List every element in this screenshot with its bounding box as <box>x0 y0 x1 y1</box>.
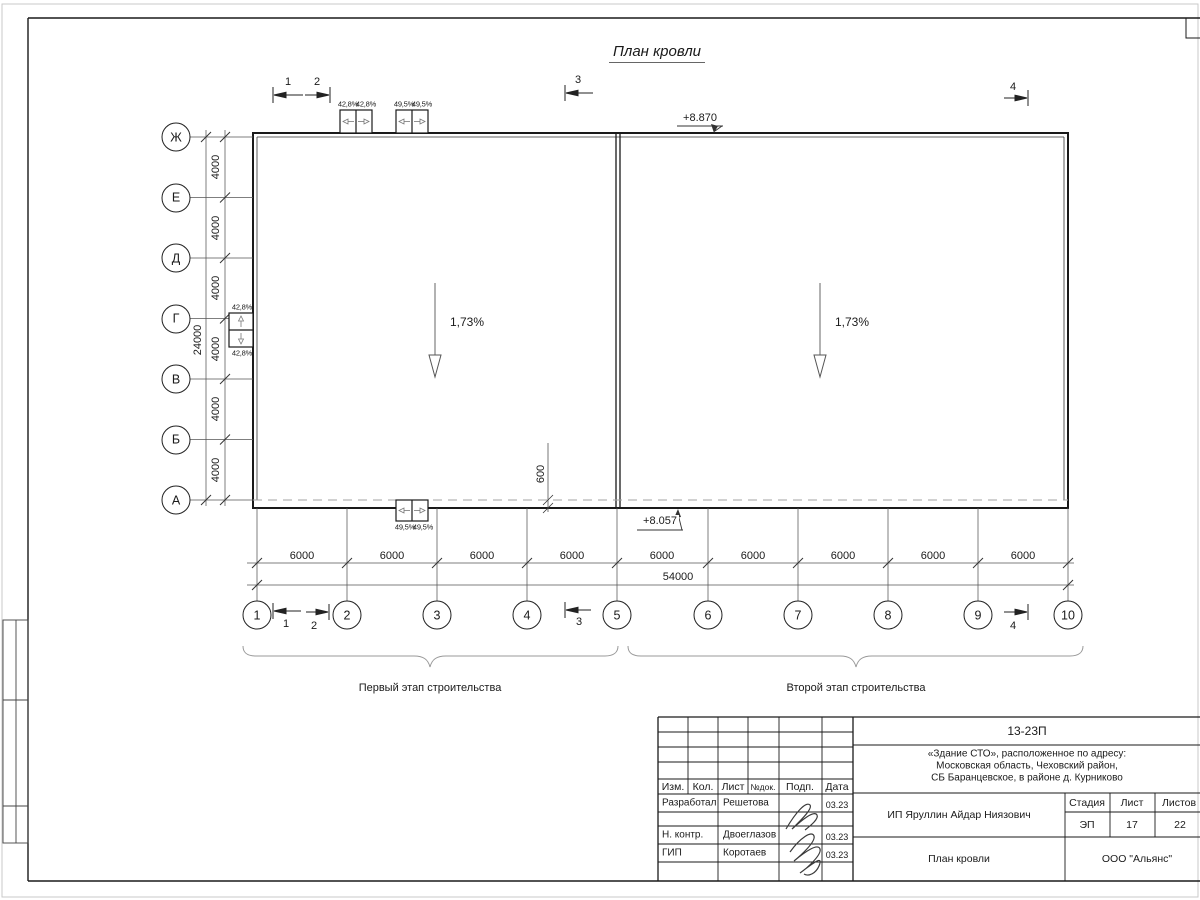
rev-header-cell: №док. <box>751 782 776 792</box>
rev-header-cell: Лист <box>722 781 745 793</box>
col-dim: 6000 <box>650 550 674 562</box>
col-axis-bubble: 5 <box>603 601 632 630</box>
col-axis-bubble: 9 <box>964 601 993 630</box>
hatch-label: 42,8% <box>232 349 252 358</box>
sheet-value: 17 <box>1126 819 1138 831</box>
stage-label-first: Первый этап строительства <box>359 682 502 694</box>
section-marker-label: 2 <box>314 76 320 88</box>
col-dim: 6000 <box>290 550 314 562</box>
client-name: ИП Яруллин Айдар Ниязович <box>887 809 1030 821</box>
col-axis-bubble: 4 <box>513 601 542 630</box>
sign-name: Коротаев <box>723 848 766 859</box>
stage-value: ЭП <box>1079 819 1094 831</box>
elevation-top-label: +8.870 <box>683 112 717 124</box>
col-dim: 6000 <box>380 550 404 562</box>
project-address-line3: СБ Баранцевское, в районе д. Курниково <box>931 773 1123 784</box>
sheet-col-header: Лист <box>1121 797 1144 809</box>
sign-role: Разработал <box>662 798 716 809</box>
row-axis-bubble: Д <box>162 244 191 273</box>
hatch-label: 42,8% <box>232 303 252 312</box>
project-address-line1: «Здание СТО», расположенное по адресу: <box>928 749 1126 760</box>
row-axis-bubble: Ж <box>162 123 191 152</box>
sign-date: 03.23 <box>826 832 849 842</box>
col-dim: 6000 <box>741 550 765 562</box>
rev-header-cell: Подп. <box>786 781 814 793</box>
stage-col-header: Стадия <box>1069 797 1105 809</box>
section-marker-label: 4 <box>1010 81 1016 93</box>
sign-date: 03.23 <box>826 850 849 860</box>
section-marker-label: 1 <box>283 618 289 630</box>
sheet-title: План кровли <box>609 43 705 63</box>
hatch-label: 49,5% <box>413 523 433 532</box>
row-axis-bubble: Е <box>162 183 191 212</box>
slope-label-left: 1,73% <box>450 315 484 329</box>
row-dim: 4000 <box>210 216 222 240</box>
col-axis-bubble: 7 <box>784 601 813 630</box>
col-axis-bubble: 10 <box>1054 601 1083 630</box>
rev-header-cell: Изм. <box>662 781 685 793</box>
sign-name: Двоеглазов <box>723 830 776 841</box>
drawing-name: План кровли <box>928 853 990 865</box>
hatch-label: 49,5% <box>412 100 432 109</box>
rev-header-cell: Кол. <box>693 781 714 793</box>
col-total-dim: 54000 <box>663 571 694 583</box>
col-dim: 6000 <box>831 550 855 562</box>
row-dim: 4000 <box>210 155 222 179</box>
section-markers-bottom <box>273 602 1028 620</box>
row-axis-bubble: В <box>162 365 191 394</box>
left-margin-stamps <box>3 620 28 843</box>
rev-header-cell: Дата <box>825 781 848 793</box>
col-axis-bubble: 8 <box>874 601 903 630</box>
sign-date: 03.23 <box>826 800 849 810</box>
drawing-sheet: План кровли Ж Е Д Г В Б А 1 2 3 4 5 6 7 … <box>0 0 1200 900</box>
stage-brace-right <box>628 646 1083 667</box>
slope-label-right: 1,73% <box>835 315 869 329</box>
sheets-col-header: Листов <box>1162 797 1196 809</box>
sign-name: Решетова <box>723 798 769 809</box>
section-marker-label: 2 <box>311 620 317 632</box>
signature-gip <box>790 834 820 875</box>
row-dim: 4000 <box>210 337 222 361</box>
sign-role: ГИП <box>662 848 682 859</box>
offset-dim-label: 600 <box>535 465 547 483</box>
section-marker-label: 4 <box>1010 620 1016 632</box>
section-marker-label: 3 <box>576 616 582 628</box>
roof-outline <box>253 133 1068 508</box>
col-axis-bubble: 2 <box>333 601 362 630</box>
col-dim: 6000 <box>1011 550 1035 562</box>
col-dim: 6000 <box>921 550 945 562</box>
stage-brace-left <box>243 646 618 667</box>
sheets-value: 22 <box>1174 819 1186 831</box>
row-total-dim: 24000 <box>192 325 204 356</box>
col-axis-bubble: 6 <box>694 601 723 630</box>
col-axis-bubble: 1 <box>243 601 272 630</box>
company-name: ООО "Альянс" <box>1102 853 1172 865</box>
section-marker-label: 3 <box>575 74 581 86</box>
sign-role: Н. контр. <box>662 830 703 841</box>
row-dim: 4000 <box>210 458 222 482</box>
section-markers-top <box>273 85 1028 106</box>
project-address-line2: Московская область, Чеховский район, <box>936 761 1118 772</box>
row-dim: 4000 <box>210 276 222 300</box>
col-dim: 6000 <box>470 550 494 562</box>
hatch-label: 42,8% <box>356 100 376 109</box>
elevation-bottom-label: +8.057 <box>641 515 679 527</box>
row-dim: 4000 <box>210 397 222 421</box>
row-axis-bubble: Б <box>162 425 191 454</box>
row-axis-bubble: А <box>162 486 191 515</box>
col-axis-bubble: 3 <box>423 601 452 630</box>
doc-number: 13-23П <box>1007 724 1046 738</box>
stage-label-second: Второй этап строительства <box>787 682 926 694</box>
col-dim: 6000 <box>560 550 584 562</box>
row-axis-bubble: Г <box>162 304 191 333</box>
section-marker-label: 1 <box>285 76 291 88</box>
elevation-top-leader <box>677 124 723 133</box>
